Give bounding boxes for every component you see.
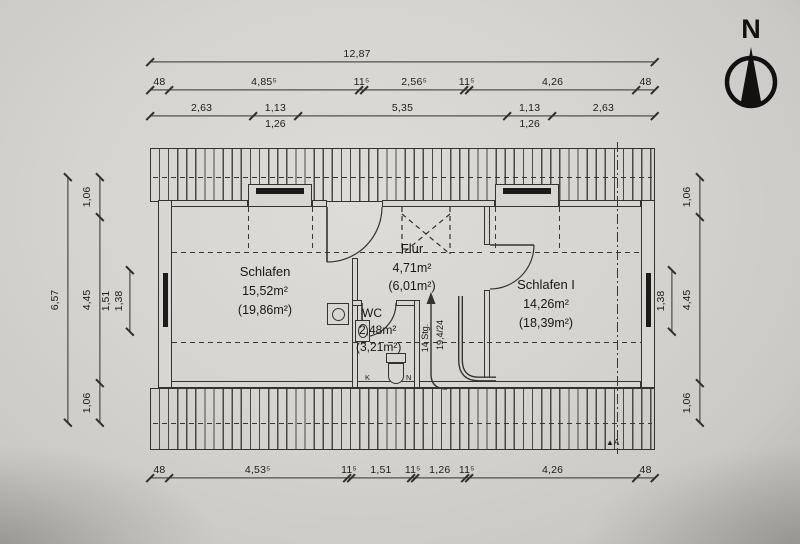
dim-segment: 1,26 xyxy=(415,472,464,484)
dim-label: 4,85⁵ xyxy=(251,76,277,88)
room-area-wc: 2,48m² xyxy=(359,323,396,337)
dim-label: 48 xyxy=(640,464,652,476)
dim-label: 1,06 xyxy=(81,187,93,207)
dim-row-bottom: 48 4,53⁵ 11⁵ 1,51 11⁵ 1,26 11⁵ 4,26 48 xyxy=(150,472,655,484)
dim-segment: 4,26 xyxy=(469,472,636,484)
dim-segment: 6,57 xyxy=(62,177,74,423)
dim-segment: 1,51 xyxy=(351,472,410,484)
door-swing-schlafen xyxy=(327,207,382,262)
compass-icon xyxy=(722,44,780,122)
room-area-gross-wc: (3,21m²) xyxy=(356,340,401,354)
dim-segment: 1,06 xyxy=(94,383,106,423)
dim-label: 4,53⁵ xyxy=(245,464,271,476)
dim-label: 1,06 xyxy=(81,393,93,413)
dim-row-total: 12,87 xyxy=(150,56,655,68)
stair-rail xyxy=(461,296,497,379)
room-area-gross: (6,01m²) xyxy=(388,277,435,296)
dim-row-3: 2,63 1,13 1,26 5,35 1,13 1,26 2,63 xyxy=(150,110,655,122)
dim-label: 1,13 xyxy=(519,102,540,114)
dim-label: 1,38 xyxy=(113,291,125,311)
dim-label: 48 xyxy=(640,76,652,88)
dim-segment: 1,06 xyxy=(94,177,106,217)
dim-label: 2,63 xyxy=(593,102,614,114)
dim-row-2: 48 4,85⁵ 11⁵ 2,56⁵ 11⁵ 4,26 48 xyxy=(150,84,655,96)
toilet-bowl xyxy=(388,363,404,384)
stair-rail-inner xyxy=(461,296,497,379)
toilet-tank xyxy=(386,353,406,363)
dim-label: 4,26 xyxy=(542,76,563,88)
dim-label: 1,51 xyxy=(100,291,112,311)
north-label: N xyxy=(722,14,780,44)
dim-label: 1,13 xyxy=(265,102,286,114)
wc-mark-k: K xyxy=(365,373,370,382)
plan-linework xyxy=(150,148,655,450)
floorplan-drawing: ▲A K N xyxy=(150,148,655,450)
dim-segment: 1,06 xyxy=(694,383,706,423)
room-name: Schlafen I xyxy=(517,275,575,295)
dim-segment: 4,85⁵ xyxy=(169,84,360,96)
dim-sublabel: 1,26 xyxy=(519,118,539,130)
room-label-schlafen1: Schlafen I 14,26m² (18,39m²) xyxy=(517,275,575,334)
room-area: 14,26m² xyxy=(517,295,575,315)
dim-segment: 1,06 xyxy=(694,177,706,217)
room-label-flur: Flur 4,71m² (6,01m²) xyxy=(388,240,435,296)
room-label-wc: WC xyxy=(362,306,382,320)
dim-segment: 48 xyxy=(636,472,655,484)
dim-label: 48 xyxy=(153,76,165,88)
room-area-gross: (18,39m²) xyxy=(517,314,575,334)
dim-segment: 5,35 xyxy=(298,110,508,122)
dim-col-left-window: 1,51 1,38 xyxy=(124,270,136,332)
dim-segment: 12,87 xyxy=(150,56,655,68)
dim-segment: 1,13 1,26 xyxy=(507,110,551,122)
photo-shadow xyxy=(580,444,800,544)
dim-label: 5,35 xyxy=(392,102,413,114)
dim-label: 1,51 xyxy=(370,464,391,476)
stair-ratio-label: 19,4/24 xyxy=(435,320,445,350)
dim-label: 2,56⁵ xyxy=(401,76,427,88)
dim-segment: 2,63 xyxy=(150,110,253,122)
wc-mark-n: N xyxy=(406,373,411,382)
dim-segment: 48 xyxy=(636,84,655,96)
dim-label: 1,06 xyxy=(681,393,693,413)
dim-segment: 4,26 xyxy=(469,84,636,96)
dim-sublabel: 1,26 xyxy=(265,118,285,130)
dim-label: 1,26 xyxy=(429,464,450,476)
photo-shadow xyxy=(0,444,220,544)
dim-label: 2,63 xyxy=(191,102,212,114)
room-name: Schlafen xyxy=(238,262,292,282)
dim-label: 1,06 xyxy=(681,187,693,207)
dim-col-right-window: 1,51 1,38 xyxy=(666,270,678,332)
dim-label: 12,87 xyxy=(343,48,370,60)
dim-segment: 4,53⁵ xyxy=(169,472,347,484)
room-area: 4,71m² xyxy=(388,259,435,278)
dim-col-left-total: 6,57 xyxy=(62,177,74,423)
room-area: 15,52m² xyxy=(238,282,292,302)
dim-segment: 1,51 1,38 xyxy=(666,270,678,332)
dim-label: 48 xyxy=(153,464,165,476)
room-name: Flur xyxy=(388,240,435,259)
dim-segment: 4,45 xyxy=(694,217,706,384)
north-arrow: N xyxy=(722,14,780,127)
dim-segment: 2,63 xyxy=(552,110,655,122)
dim-segment: 2,56⁵ xyxy=(364,84,465,96)
room-label-schlafen: Schlafen 15,52m² (19,86m²) xyxy=(238,262,292,321)
room-area-gross: (19,86m²) xyxy=(238,301,292,321)
chimney-flue-icon xyxy=(332,308,345,321)
dim-label: 4,45 xyxy=(81,290,93,310)
dim-label: 6,57 xyxy=(49,290,61,310)
dim-segment: 1,13 1,26 xyxy=(253,110,297,122)
dim-col-right-chain: 1,06 4,45 1,06 xyxy=(694,177,706,423)
floorplan-sheet: N 12,87 48 4,85⁵ 11⁵ 2,56⁵ 11⁵ 4,26 48 2… xyxy=(0,0,800,544)
dim-label: 4,45 xyxy=(681,290,693,310)
dim-label: 4,26 xyxy=(542,464,563,476)
dim-segment: 1,51 1,38 xyxy=(124,270,136,332)
stair-steps-label: 14 Stg. xyxy=(420,324,430,353)
dim-label: 1,38 xyxy=(655,291,667,311)
